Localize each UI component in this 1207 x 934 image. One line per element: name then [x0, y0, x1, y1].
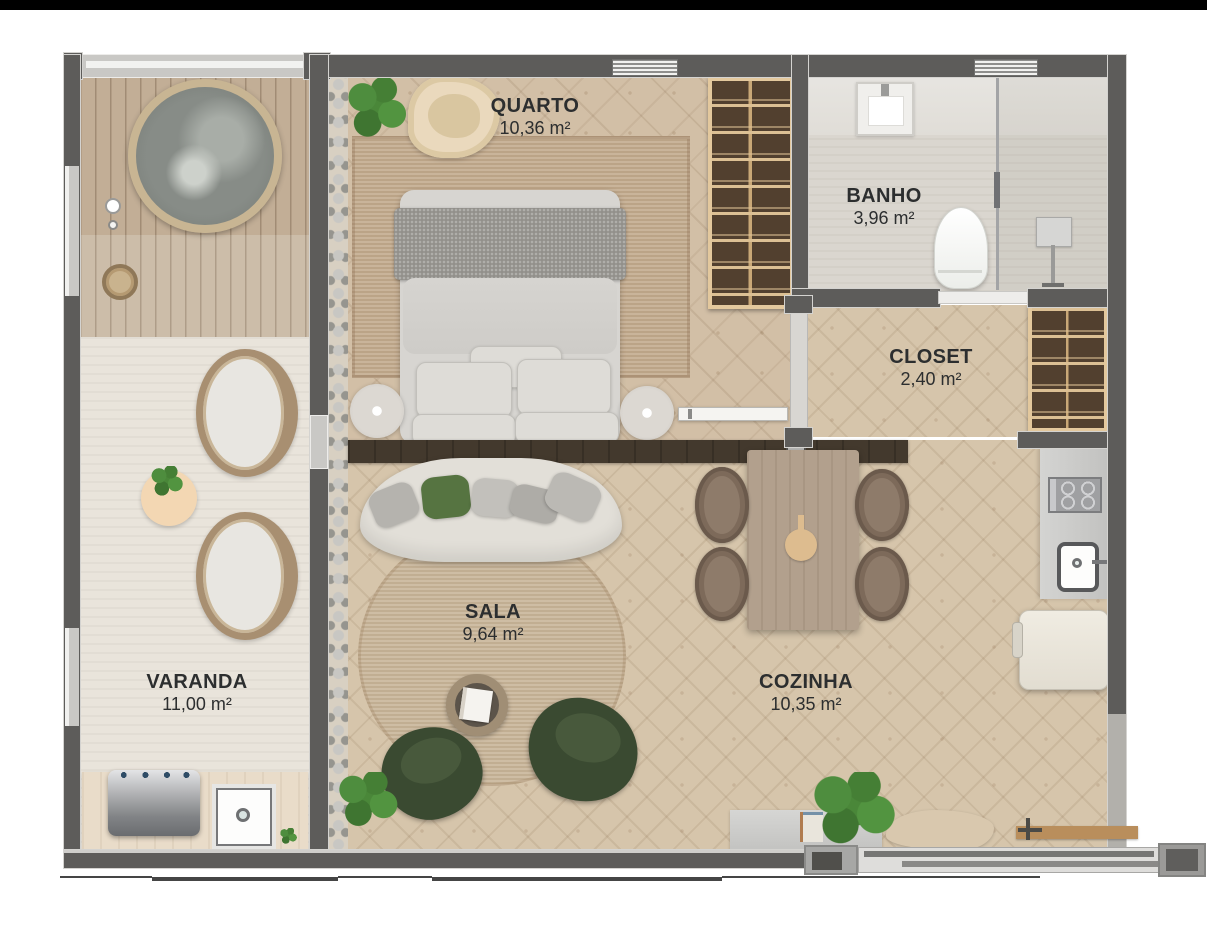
- bottom-wall: [64, 850, 810, 868]
- sliding-door-leaf: [678, 407, 788, 421]
- varanda-armchair-1: [196, 349, 298, 477]
- corridor-wall-post-bottom: [785, 428, 812, 447]
- soap-dispenser: [105, 198, 121, 214]
- bed-throw-blanket: [394, 208, 626, 280]
- room-label-banho: BANHO 3,96 m²: [846, 185, 921, 231]
- room-area-cozinha: 10,35 m²: [759, 693, 853, 716]
- left-wall-window-2: [65, 628, 79, 726]
- bedside-lamp-right: [620, 386, 674, 440]
- quarto-plant: [348, 78, 406, 142]
- sliding-glass-door-panel-2: [902, 861, 1158, 867]
- room-label-sala: SALA 9,64 m²: [462, 601, 523, 647]
- top-wall-louver-vent-1: [612, 59, 678, 76]
- sofa-pillow-green: [420, 474, 472, 521]
- room-area-varanda: 11,00 m²: [146, 693, 247, 716]
- banho-bottom-wall-right: [1028, 289, 1108, 307]
- soap-dispenser-small: [108, 220, 118, 230]
- fridge: [1019, 610, 1109, 690]
- room-name-banho: BANHO: [846, 185, 921, 207]
- sliding-door-end-pocket-core: [1166, 849, 1198, 871]
- banho-door-threshold: [938, 291, 1030, 304]
- bedside-lamp-left: [350, 384, 404, 438]
- banho-sink-bowl: [868, 96, 904, 126]
- kitchen-faucet-base: [1072, 558, 1082, 568]
- room-label-varanda: VARANDA 11,00 m²: [146, 671, 247, 717]
- varanda-sink-faucet: [236, 808, 250, 822]
- closet-bottom-wall: [1018, 432, 1108, 448]
- bottom-door-post-core: [812, 852, 842, 870]
- fridge-handle: [1012, 622, 1023, 658]
- section-line-2: [152, 877, 338, 881]
- dining-chair-3: [855, 469, 909, 541]
- sliding-door-handle: [688, 409, 692, 419]
- toilet: [934, 207, 988, 289]
- round-basket: [102, 264, 138, 300]
- quarto-wardrobe: [708, 77, 794, 309]
- room-area-banho: 3,96 m²: [846, 207, 921, 230]
- sliding-glass-door-panel-1: [864, 851, 1154, 857]
- side-table-plant: [151, 466, 183, 498]
- bed-pillow-right: [517, 359, 611, 415]
- room-label-cozinha: COZINHA 10,35 m²: [759, 671, 853, 717]
- shower-glass-hinge: [994, 172, 1000, 208]
- room-name-cozinha: COZINHA: [759, 671, 853, 693]
- monstera-plant: [812, 772, 896, 848]
- room-label-quarto: QUARTO 10,36 m²: [491, 95, 580, 141]
- dining-chair-2: [695, 547, 749, 621]
- dining-chair-4-seat: [864, 556, 900, 612]
- shower-head: [1036, 217, 1072, 247]
- shower-valve-handles: [1042, 283, 1064, 287]
- section-line-5: [722, 876, 1040, 878]
- room-name-quarto: QUARTO: [491, 95, 580, 117]
- shower-arm: [1051, 245, 1055, 285]
- closet-wardrobe: [1028, 304, 1108, 432]
- section-line-3: [338, 876, 432, 878]
- section-line-1: [60, 876, 152, 878]
- room-name-varanda: VARANDA: [146, 671, 247, 693]
- room-area-quarto: 10,36 m²: [491, 117, 580, 140]
- room-name-sala: SALA: [462, 601, 523, 623]
- shelf-faucet-fixture: [1018, 818, 1042, 840]
- dining-chair-4: [855, 547, 909, 621]
- left-wall-window-1: [65, 166, 79, 296]
- cooktop-burners: [1058, 480, 1098, 510]
- varanda-mini-plant: [280, 828, 297, 845]
- grill-knobs: [118, 772, 190, 778]
- coffee-table-book: [459, 687, 493, 723]
- varanda-armchair-2: [196, 512, 298, 640]
- sala-plant: [338, 772, 398, 830]
- kitchen-faucet: [1092, 560, 1108, 564]
- banho-sink-faucet: [881, 84, 889, 96]
- dining-chair-1-seat: [704, 476, 740, 534]
- top-black-bar: [0, 0, 1207, 10]
- corridor-wall: [790, 307, 808, 433]
- floorplan-canvas: QUARTO 10,36 m² BANHO 3,96 m² CLOSET 2,4…: [0, 0, 1207, 934]
- bed-duvet: [403, 278, 617, 354]
- room-label-closet: CLOSET 2,40 m²: [889, 346, 973, 392]
- toilet-seat-line: [938, 270, 982, 273]
- barbecue-grill: [108, 770, 200, 836]
- cutting-board: [785, 529, 817, 561]
- bed-pillow-left: [416, 362, 512, 418]
- jacuzzi: [128, 79, 282, 233]
- banho-bottom-wall-left: [792, 289, 940, 307]
- corridor-wall-post-top: [785, 296, 812, 313]
- hanging-chair-cushion: [428, 94, 480, 138]
- varanda-top-window-sill: [86, 61, 306, 68]
- room-area-sala: 9,64 m²: [462, 623, 523, 646]
- green-armchair-2-seat: [550, 707, 626, 770]
- dining-chair-2-seat: [704, 556, 740, 612]
- room-area-closet: 2,40 m²: [889, 368, 973, 391]
- dining-chair-1: [695, 467, 749, 543]
- pebble-strip: [328, 75, 348, 852]
- room-name-closet: CLOSET: [889, 346, 973, 368]
- quarto-banho-wall: [792, 55, 808, 307]
- varanda-divider-glass-door: [311, 416, 327, 468]
- section-line-4: [432, 877, 722, 881]
- cutting-board-handle: [798, 515, 804, 531]
- green-armchair-1-seat: [395, 730, 468, 791]
- dining-chair-3-seat: [864, 478, 900, 532]
- beige-throw: [886, 810, 994, 850]
- top-wall-louver-vent-2: [974, 59, 1038, 76]
